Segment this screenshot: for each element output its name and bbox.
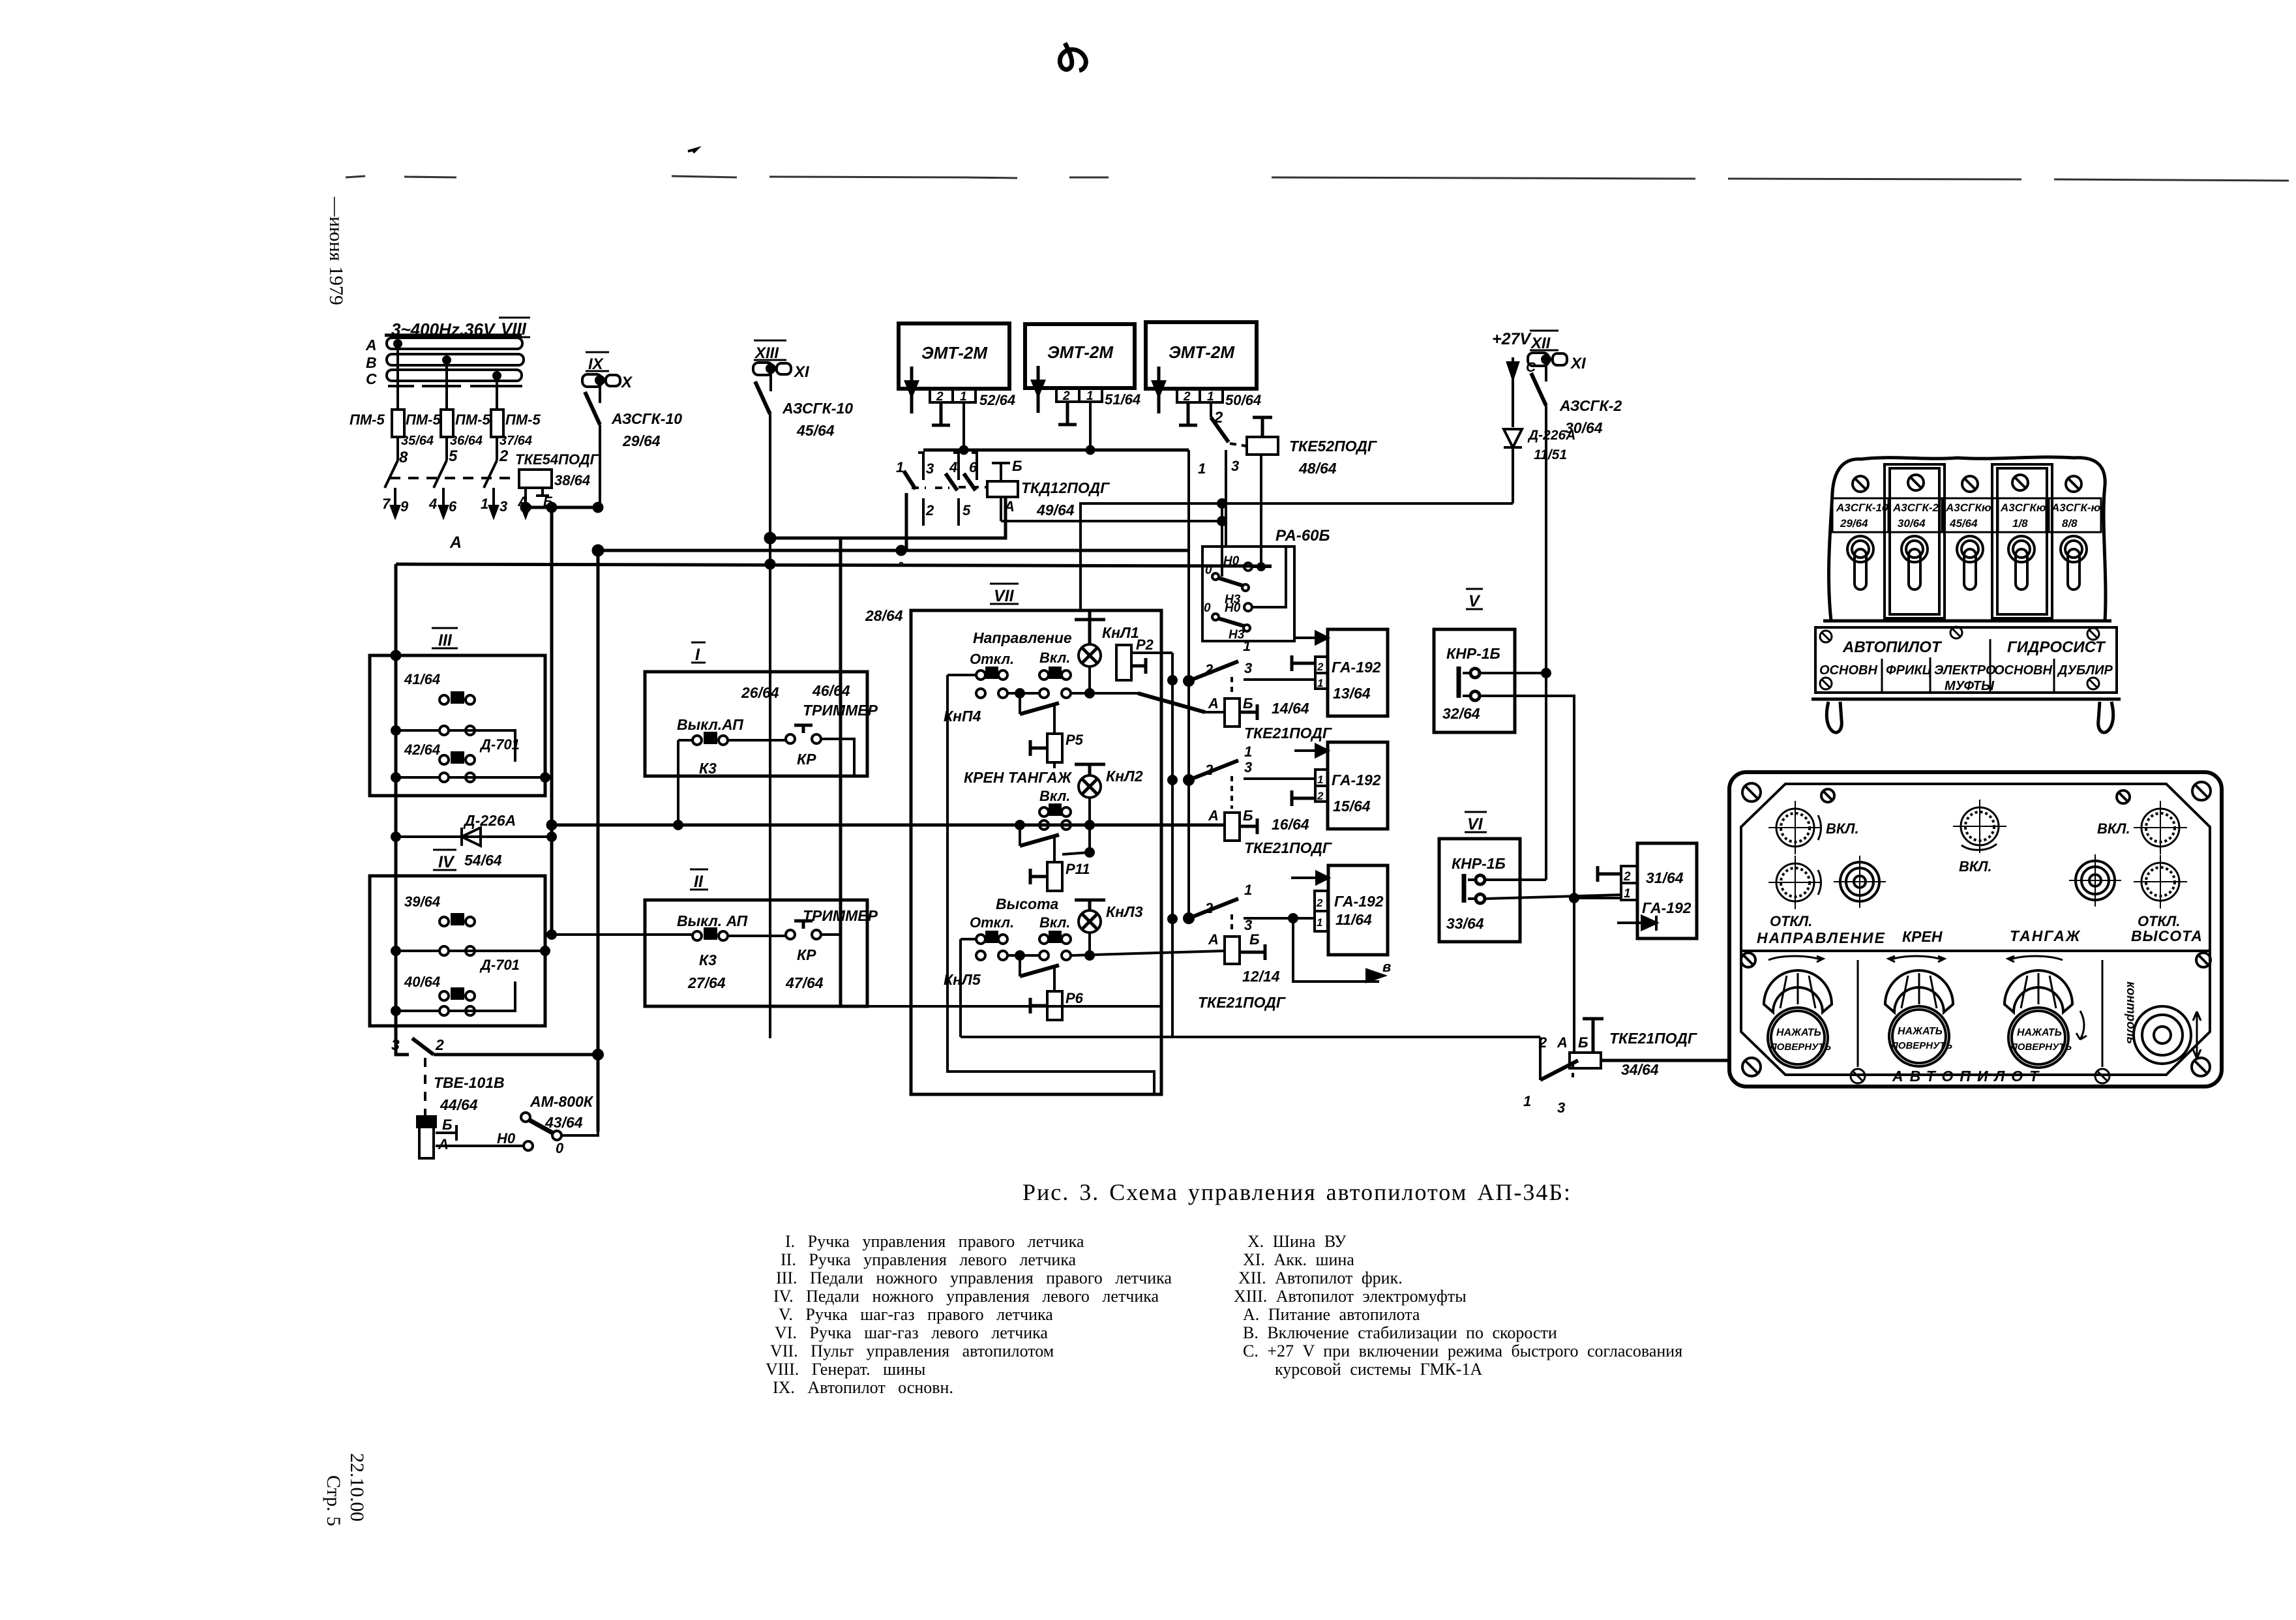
svg-text:7: 7 <box>382 496 391 512</box>
svg-text:IV. Педали ножного управления: IV. Педали ножного управления левого лет… <box>773 1287 1159 1306</box>
svg-text:2: 2 <box>925 502 934 518</box>
svg-text:Д-701: Д-701 <box>479 736 520 753</box>
svg-text:XII. Автопилот фрик.: XII. Автопилот фрик. <box>1238 1268 1403 1287</box>
svg-text:V. Ручка шаг-газ правого летчи: V. Ручка шаг-газ правого летчика <box>779 1305 1053 1324</box>
svg-text:АВТОПИЛОТ: АВТОПИЛОТ <box>1892 1068 2045 1085</box>
svg-text:ТРИММЕР: ТРИММЕР <box>803 907 878 924</box>
svg-text:B: B <box>366 354 377 371</box>
svg-text:КнП4: КнП4 <box>944 708 981 725</box>
svg-text:ГИДРОСИСТ: ГИДРОСИСТ <box>2007 638 2106 656</box>
svg-text:КнЛ5: КнЛ5 <box>944 971 981 988</box>
svg-text:Б: Б <box>1249 931 1260 948</box>
svg-text:ТКЕ21ПОДГ: ТКЕ21ПОДГ <box>1198 994 1286 1011</box>
svg-text:0: 0 <box>556 1140 564 1156</box>
svg-text:X: X <box>620 374 633 391</box>
svg-text:52/64: 52/64 <box>979 392 1015 408</box>
svg-text:1: 1 <box>1317 916 1322 929</box>
svg-text:НАЖАТЬ: НАЖАТЬ <box>2017 1027 2062 1038</box>
svg-text:ПОВЕРНУТЬ: ПОВЕРНУТЬ <box>1770 1042 1831 1053</box>
svg-text:Б: Б <box>1243 807 1253 824</box>
svg-text:VII: VII <box>994 587 1015 605</box>
svg-text:5: 5 <box>449 447 458 465</box>
svg-text:ТКЕ21ПОДГ: ТКЕ21ПОДГ <box>1609 1030 1697 1047</box>
svg-text:В. Включение стабилизации по с: В. Включение стабилизации по скорости <box>1243 1323 1557 1342</box>
svg-text:ПОВЕРНУТЬ: ПОВЕРНУТЬ <box>2010 1042 2072 1053</box>
svg-text:4: 4 <box>949 459 957 475</box>
svg-text:А: А <box>1208 695 1219 712</box>
svg-text:Д-226А: Д-226А <box>1527 428 1575 443</box>
svg-text:3: 3 <box>1244 660 1252 676</box>
svg-text:8/8: 8/8 <box>2062 517 2078 530</box>
svg-text:МУФТЫ: МУФТЫ <box>1945 679 1995 693</box>
svg-text:Вкл.: Вкл. <box>1039 914 1070 931</box>
svg-text:4: 4 <box>428 496 437 512</box>
svg-text:1: 1 <box>1624 887 1631 901</box>
svg-text:КнЛ2: КнЛ2 <box>1106 768 1143 785</box>
svg-text:IX. Автопилот основн.: IX. Автопилот основн. <box>773 1378 953 1397</box>
svg-text:32/64: 32/64 <box>1442 705 1480 722</box>
svg-text:Н0: Н0 <box>497 1130 516 1147</box>
svg-text:XI. Акк. шина: XI. Акк. шина <box>1243 1250 1354 1269</box>
svg-text:КнЛ1: КнЛ1 <box>1102 624 1139 641</box>
svg-text:Откл.: Откл. <box>970 651 1014 667</box>
svg-text:C: C <box>366 370 377 387</box>
svg-text:ТКД12ПОДГ: ТКД12ПОДГ <box>1021 479 1110 496</box>
svg-text:АЗСГК-10: АЗСГК-10 <box>611 410 682 427</box>
svg-text:30/64: 30/64 <box>1898 517 1926 530</box>
svg-text:ОТКЛ.: ОТКЛ. <box>1770 913 1812 929</box>
svg-text:43/64: 43/64 <box>544 1114 583 1131</box>
svg-text:1: 1 <box>1244 882 1252 898</box>
svg-text:АЗСГК-2: АЗСГК-2 <box>1559 397 1622 414</box>
svg-text:22.10.00: 22.10.00 <box>346 1453 368 1522</box>
svg-text:ЭМТ-2М: ЭМТ-2М <box>1169 342 1235 362</box>
svg-text:39/64: 39/64 <box>404 893 440 910</box>
svg-text:С. +27 V при включении режима: С. +27 V при включении режима быстрого с… <box>1243 1342 1682 1360</box>
svg-text:III: III <box>438 631 453 650</box>
svg-text:1: 1 <box>1198 460 1206 477</box>
svg-text:III. Педали ножного управления: III. Педали ножного управления правого л… <box>776 1268 1172 1287</box>
svg-text:Рис. 3. Схема управления автоп: Рис. 3. Схема управления автопилотом АП-… <box>1022 1179 1572 1205</box>
svg-text:НАЖАТЬ: НАЖАТЬ <box>1898 1026 1943 1037</box>
svg-text:49/64: 49/64 <box>1036 502 1075 518</box>
svg-text:II: II <box>694 873 704 891</box>
svg-text:ДУБЛИР: ДУБЛИР <box>2057 663 2113 678</box>
svg-text:ЭМТ-2М: ЭМТ-2М <box>1047 342 1114 362</box>
svg-text:1: 1 <box>896 459 904 475</box>
svg-text:А3СГК-2: А3СГК-2 <box>1892 502 1939 514</box>
svg-text:40/64: 40/64 <box>404 974 440 990</box>
svg-text:1: 1 <box>1207 390 1214 404</box>
svg-text:Направление: Направление <box>973 629 1072 646</box>
svg-text:51/64: 51/64 <box>1105 391 1141 408</box>
svg-text:А: А <box>438 1136 449 1152</box>
svg-text:АЗСГК-10: АЗСГК-10 <box>782 400 853 417</box>
svg-text:2: 2 <box>1316 897 1323 909</box>
svg-text:Высота: Высота <box>996 895 1059 912</box>
svg-text:0: 0 <box>1204 601 1211 615</box>
svg-text:ГА-192: ГА-192 <box>1334 893 1384 910</box>
svg-text:—июня 1979: —июня 1979 <box>325 196 347 305</box>
svg-text:А: А <box>1208 931 1219 948</box>
svg-text:А3СГКю: А3СГКю <box>1945 502 1991 514</box>
svg-text:36/64: 36/64 <box>450 434 483 448</box>
svg-text:2: 2 <box>1317 661 1324 673</box>
svg-text:ТКЕ21ПОДГ: ТКЕ21ПОДГ <box>1244 725 1332 742</box>
svg-text:2: 2 <box>435 1036 444 1053</box>
svg-text:А3СГКю: А3СГКю <box>2000 502 2046 514</box>
svg-text:Н0: Н0 <box>1225 601 1241 615</box>
svg-text:44/64: 44/64 <box>440 1096 478 1113</box>
svg-text:1: 1 <box>1317 773 1323 786</box>
svg-text:1: 1 <box>1244 743 1252 760</box>
svg-text:16/64: 16/64 <box>1272 816 1309 833</box>
svg-text:41/64: 41/64 <box>404 671 440 687</box>
svg-text:в: в <box>1382 959 1391 975</box>
svg-text:ОСНОВН: ОСНОВН <box>1819 663 1877 678</box>
svg-text:Р5: Р5 <box>1066 732 1084 748</box>
svg-text:29/64: 29/64 <box>622 432 661 449</box>
svg-text:1: 1 <box>1317 677 1323 689</box>
svg-text:2: 2 <box>936 390 944 404</box>
svg-text:курсовой системы ГМК-1А: курсовой системы ГМК-1А <box>1275 1360 1482 1379</box>
svg-text:8: 8 <box>399 449 408 466</box>
svg-text:3: 3 <box>391 1036 400 1053</box>
svg-text:14/64: 14/64 <box>1272 700 1309 717</box>
svg-text:2: 2 <box>1538 1034 1547 1051</box>
svg-text:3: 3 <box>1557 1100 1565 1116</box>
svg-text:А: А <box>1557 1034 1568 1051</box>
svg-text:II. Ручка управления левого ле: II. Ручка управления левого летчика <box>781 1250 1077 1269</box>
svg-text:РА-60Б: РА-60Б <box>1275 527 1330 545</box>
svg-text:2: 2 <box>1317 790 1324 802</box>
svg-text:Д-226А: Д-226А <box>463 812 516 829</box>
svg-text:31/64: 31/64 <box>1646 869 1684 886</box>
svg-text:3: 3 <box>926 460 934 477</box>
svg-text:НАПРАВЛЕНИЕ: НАПРАВЛЕНИЕ <box>1757 929 1886 946</box>
svg-text:6: 6 <box>449 498 457 515</box>
svg-text:Н3: Н3 <box>1229 628 1245 642</box>
svg-text:X. Шина ВУ: X. Шина ВУ <box>1247 1232 1347 1251</box>
svg-text:А3СГК-10: А3СГК-10 <box>1836 502 1888 514</box>
svg-text:1: 1 <box>1523 1093 1531 1109</box>
svg-text:Стр. 5: Стр. 5 <box>323 1475 344 1526</box>
svg-text:50/64: 50/64 <box>1225 392 1261 408</box>
svg-text:ОСНОВН: ОСНОВН <box>1994 663 2052 678</box>
svg-text:КНР-1Б: КНР-1Б <box>1452 855 1506 872</box>
svg-text:ГА-192: ГА-192 <box>1332 772 1381 788</box>
svg-text:XI: XI <box>793 363 810 381</box>
svg-text:ТКЕ54ПОДГ: ТКЕ54ПОДГ <box>515 451 600 468</box>
svg-text:ВКЛ.: ВКЛ. <box>1959 858 1992 875</box>
svg-text:АМ-800К: АМ-800К <box>529 1093 594 1110</box>
svg-text:5: 5 <box>962 502 971 518</box>
svg-text:ВЫСОТА: ВЫСОТА <box>2131 927 2203 944</box>
svg-text:ТАНГАЖ: ТАНГАЖ <box>2010 927 2081 944</box>
svg-text:КНР-1Б: КНР-1Б <box>1446 645 1500 662</box>
svg-text:Вкл.: Вкл. <box>1039 650 1070 666</box>
svg-text:A: A <box>365 337 377 353</box>
svg-text:Б: Б <box>1012 458 1022 474</box>
svg-text:1: 1 <box>960 390 967 404</box>
svg-text:ФРИКЦ: ФРИКЦ <box>1886 663 1932 678</box>
svg-text:9: 9 <box>400 498 409 515</box>
svg-text:54/64: 54/64 <box>464 852 502 869</box>
svg-text:2: 2 <box>1183 390 1191 404</box>
svg-text:ТРИММЕР: ТРИММЕР <box>803 702 878 719</box>
svg-text:1: 1 <box>1243 638 1251 654</box>
svg-text:ВКЛ.: ВКЛ. <box>2097 820 2130 837</box>
svg-text:34/64: 34/64 <box>1621 1061 1659 1078</box>
svg-text:Откл.: Откл. <box>970 914 1014 931</box>
svg-text:1/8: 1/8 <box>2012 517 2028 530</box>
svg-text:Б: Б <box>1578 1034 1588 1051</box>
svg-text:48/64: 48/64 <box>1298 460 1337 477</box>
svg-text:Р6: Р6 <box>1066 990 1084 1006</box>
svg-text:ПОВЕРНУТЬ: ПОВЕРНУТЬ <box>1891 1040 1952 1051</box>
svg-text:37/64: 37/64 <box>499 434 532 448</box>
svg-text:3: 3 <box>499 498 507 515</box>
svg-text:47/64: 47/64 <box>785 974 824 991</box>
svg-text:Д-701: Д-701 <box>479 957 520 973</box>
svg-text:35/64: 35/64 <box>401 434 434 448</box>
svg-text:Б: Б <box>442 1117 453 1133</box>
svg-text:28/64: 28/64 <box>865 607 903 624</box>
svg-text:НАЖАТЬ: НАЖАТЬ <box>1776 1027 1821 1038</box>
svg-text:45/64: 45/64 <box>1949 517 1978 530</box>
svg-text:15/64: 15/64 <box>1333 798 1371 815</box>
svg-text:АВТОПИЛОТ: АВТОПИЛОТ <box>1842 638 1943 656</box>
svg-text:КР: КР <box>797 946 816 963</box>
svg-text:Р2: Р2 <box>1136 637 1154 653</box>
svg-text:VI. Ручка шаг-газ левого летчи: VI. Ручка шаг-газ левого летчика <box>775 1323 1048 1342</box>
svg-text:V: V <box>1469 592 1481 610</box>
svg-text:ТКЕ52ПОДГ: ТКЕ52ПОДГ <box>1289 438 1377 455</box>
svg-text:2: 2 <box>1623 870 1631 884</box>
svg-text:27/64: 27/64 <box>687 974 726 991</box>
svg-text:I: I <box>695 646 700 664</box>
svg-text:ЭЛЕКТРО: ЭЛЕКТРО <box>1934 663 1996 678</box>
svg-text:1: 1 <box>1086 389 1094 403</box>
svg-text:3: 3 <box>1231 458 1239 474</box>
svg-text:А. Питание автопилота: А. Питание автопилота <box>1243 1305 1420 1324</box>
svg-text:ПМ-5: ПМ-5 <box>455 412 490 428</box>
svg-text:2: 2 <box>1062 389 1070 403</box>
svg-text:XIII. Автопилот электромуфты: XIII. Автопилот электромуфты <box>1234 1287 1467 1306</box>
svg-text:1: 1 <box>481 496 488 512</box>
svg-text:11/51: 11/51 <box>1534 447 1567 462</box>
svg-text:42/64: 42/64 <box>404 742 440 758</box>
svg-text:11/64: 11/64 <box>1335 911 1372 928</box>
svg-text:IV: IV <box>438 853 455 871</box>
svg-text:3: 3 <box>1244 759 1252 775</box>
svg-text:13/64: 13/64 <box>1333 685 1371 702</box>
svg-text:А: А <box>1208 807 1219 824</box>
svg-text:А: А <box>449 533 462 552</box>
svg-text:ПМ-5: ПМ-5 <box>406 412 441 428</box>
svg-text:2: 2 <box>499 447 509 465</box>
svg-text:КнЛ3: КнЛ3 <box>1106 903 1143 920</box>
svg-text:ТКЕ21ПОДГ: ТКЕ21ПОДГ <box>1244 839 1332 856</box>
svg-text:ТВЕ-101В: ТВЕ-101В <box>434 1074 505 1091</box>
svg-text:26/64: 26/64 <box>741 684 779 701</box>
svg-text:12/14: 12/14 <box>1242 968 1280 985</box>
svg-text:46/64: 46/64 <box>812 682 850 699</box>
svg-text:К3: К3 <box>699 760 717 777</box>
svg-text:КРЕН ТАНГАЖ: КРЕН ТАНГАЖ <box>964 769 1073 786</box>
svg-text:ЭМТ-2М: ЭМТ-2М <box>921 343 988 363</box>
svg-text:контроль: контроль <box>2124 982 2138 1044</box>
svg-text:С: С <box>1526 360 1536 375</box>
svg-text:29/64: 29/64 <box>1840 517 1868 530</box>
svg-text:Вкл.: Вкл. <box>1039 788 1070 804</box>
svg-text:45/64: 45/64 <box>796 422 835 439</box>
svg-text:33/64: 33/64 <box>1446 915 1484 932</box>
svg-text:Р11: Р11 <box>1066 861 1090 877</box>
svg-text:38/64: 38/64 <box>554 472 590 488</box>
svg-text:ПМ-5: ПМ-5 <box>350 412 385 428</box>
svg-text:VIII. Генерат. шины: VIII. Генерат. шины <box>766 1360 925 1379</box>
svg-text:ВКЛ.: ВКЛ. <box>1826 820 1859 837</box>
svg-text:VII. Пульт управления автопило: VII. Пульт управления автопилотом <box>770 1342 1054 1360</box>
svg-text:КРЕН: КРЕН <box>1902 928 1943 945</box>
svg-text:А3СГК-ю: А3СГК-ю <box>2051 502 2101 514</box>
svg-text:ПМ-5: ПМ-5 <box>505 412 541 428</box>
svg-text:Выкл.АП: Выкл.АП <box>677 716 743 733</box>
svg-text:ГА-192: ГА-192 <box>1642 899 1692 916</box>
svg-text:I. Ручка управления правого ле: I. Ручка управления правого летчика <box>785 1232 1084 1251</box>
svg-text:XI: XI <box>1570 355 1587 372</box>
svg-text:VI: VI <box>1467 815 1483 833</box>
svg-text:Выкл. АП: Выкл. АП <box>677 912 748 929</box>
svg-text:Б: Б <box>1243 695 1253 712</box>
svg-text:КР: КР <box>797 751 816 768</box>
svg-text:ГА-192: ГА-192 <box>1332 659 1381 676</box>
svg-text:+27V: +27V <box>1492 330 1532 348</box>
svg-text:К3: К3 <box>699 952 717 968</box>
